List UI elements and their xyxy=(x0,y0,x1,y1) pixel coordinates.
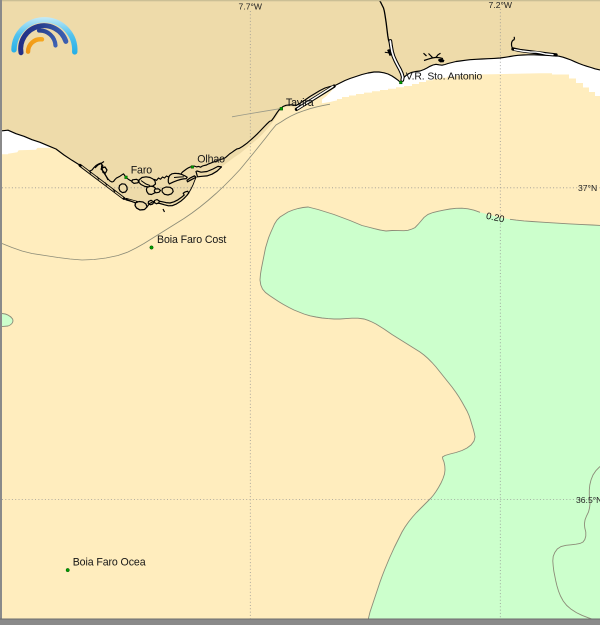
svg-text:7.7°W: 7.7°W xyxy=(239,2,263,12)
svg-text:Tavira: Tavira xyxy=(286,97,314,109)
svg-text:Boia Faro Cost: Boia Faro Cost xyxy=(157,234,226,246)
svg-text:37°N: 37°N xyxy=(578,183,597,193)
svg-text:V.R. Sto. Antonio: V.R. Sto. Antonio xyxy=(406,72,483,83)
svg-text:Boia Faro Ocea: Boia Faro Ocea xyxy=(73,557,146,569)
svg-text:Faro: Faro xyxy=(131,165,153,177)
svg-text:Olhao: Olhao xyxy=(197,154,225,166)
svg-text:7.2°W: 7.2°W xyxy=(489,0,513,10)
svg-text:36.5°N: 36.5°N xyxy=(576,495,600,505)
